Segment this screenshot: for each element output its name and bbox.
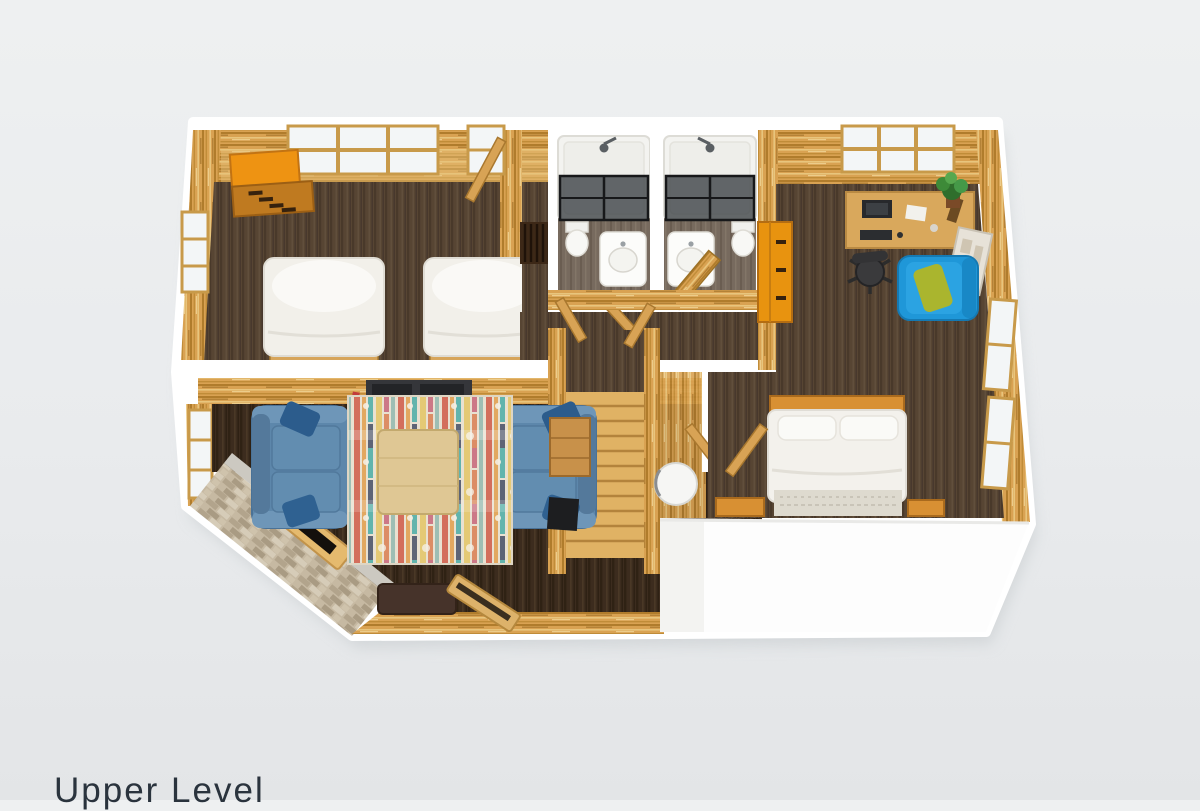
twin-window-left xyxy=(182,212,208,292)
twin-window-top xyxy=(288,126,438,174)
nightstand-left xyxy=(716,498,764,516)
chest xyxy=(758,222,792,322)
tv xyxy=(547,497,579,531)
bathroom-divider-wall xyxy=(650,128,664,296)
ottoman xyxy=(378,584,456,614)
shower-head xyxy=(706,144,715,153)
floorplan-svg xyxy=(0,0,1200,800)
nightstand-right xyxy=(908,500,944,516)
double-bed xyxy=(768,396,906,516)
round-table xyxy=(655,463,697,505)
twin-bed-1 xyxy=(264,258,384,364)
master-window-top xyxy=(842,126,954,172)
toilet xyxy=(566,222,588,256)
foot-blanket xyxy=(774,490,902,516)
cup xyxy=(930,224,938,232)
floorplan-render: Upper Level xyxy=(0,0,1200,800)
room-bathrooms xyxy=(548,124,764,334)
toilet xyxy=(732,222,754,256)
vanity-sink xyxy=(600,232,646,286)
coffee-table xyxy=(378,430,458,514)
cutaway-wall-face xyxy=(660,518,1029,632)
cut-wall-band-left xyxy=(178,360,548,380)
pillow xyxy=(778,416,836,440)
room-twin-bedroom xyxy=(181,126,548,364)
bathroom-right xyxy=(664,136,756,309)
papers xyxy=(905,205,927,222)
sofa-left xyxy=(252,400,348,529)
pillow xyxy=(840,416,898,440)
side-table xyxy=(550,418,590,476)
bathroom-lower-wall xyxy=(548,290,764,310)
floor-label: Upper Level xyxy=(54,771,265,811)
mouse xyxy=(897,232,903,238)
armchair xyxy=(898,256,978,320)
keyboard xyxy=(860,230,892,240)
shower-head xyxy=(600,144,609,153)
